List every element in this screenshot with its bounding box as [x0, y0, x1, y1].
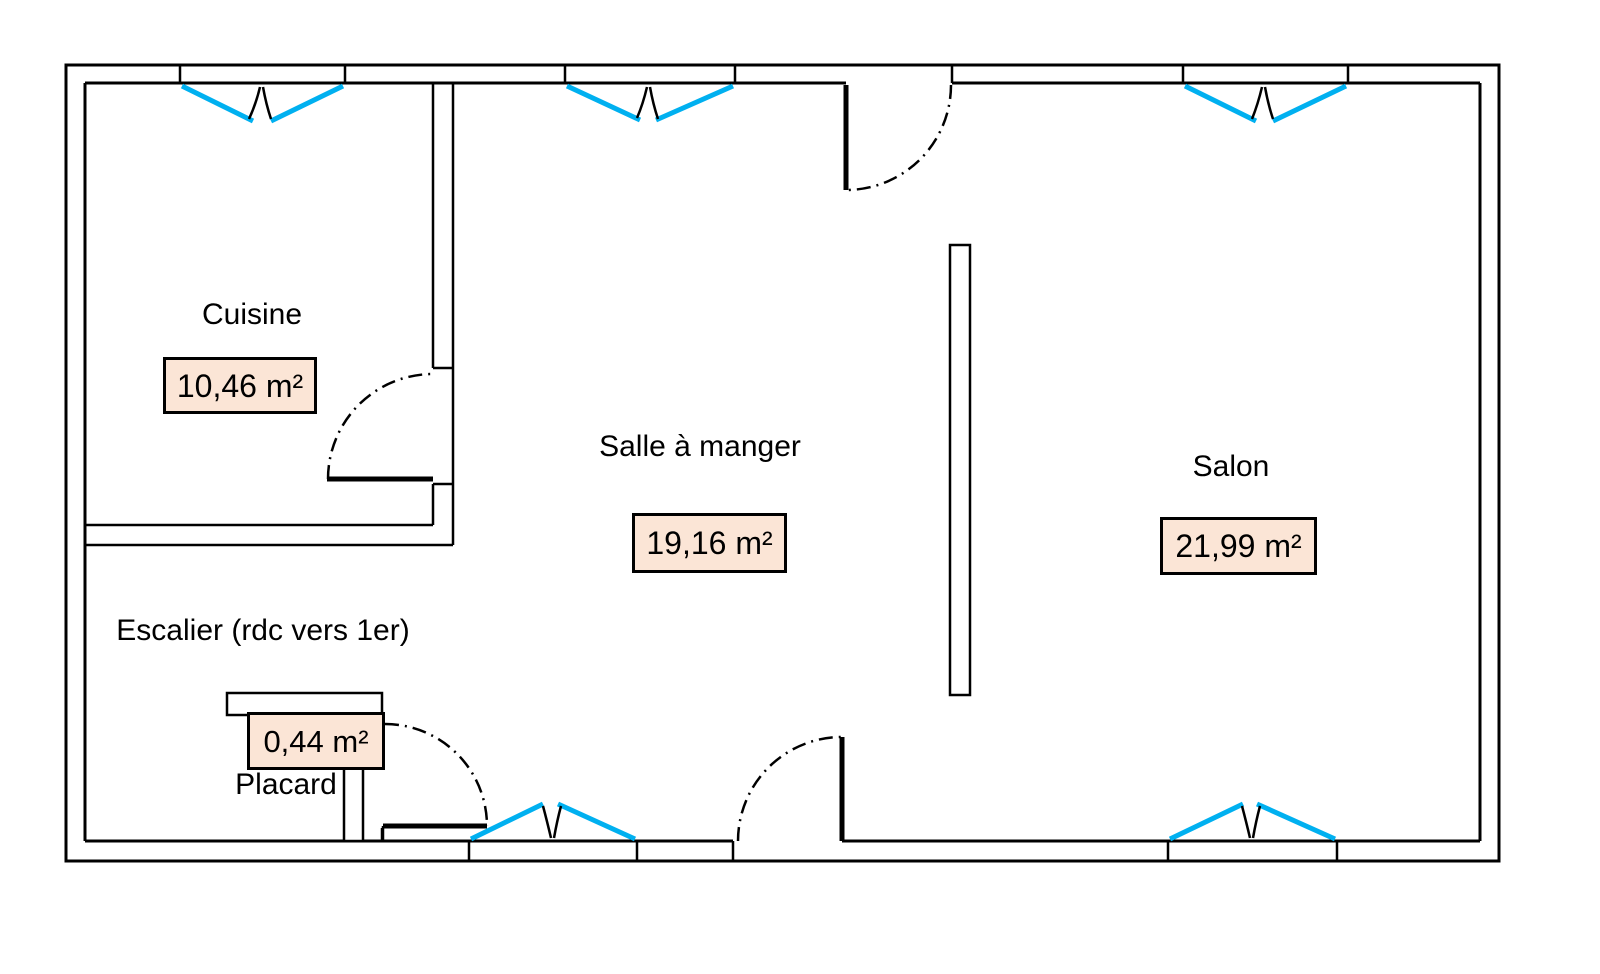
room-label-cuisine: Cuisine: [202, 300, 302, 330]
window-salle-a-manger-icon: [567, 86, 733, 120]
entrance-door-icon: [846, 85, 951, 190]
partition-wall: [950, 245, 970, 695]
window-salon-bottom-icon: [1170, 804, 1335, 839]
bottom-door-icon: [738, 737, 842, 841]
area-badge-salle-a-manger: 19,16 m²: [632, 513, 787, 573]
area-badge-placard: 0,44 m²: [247, 712, 385, 770]
room-label-salon: Salon: [1193, 452, 1270, 482]
cuisine-door-icon: [327, 374, 433, 479]
window-bottom-left-icon: [471, 804, 635, 839]
room-label-salle-a-manger: Salle à manger: [599, 432, 801, 462]
area-badge-cuisine: 10,46 m²: [163, 357, 317, 414]
window-cuisine-icon: [182, 86, 343, 121]
floor-plan: Cuisine Salle à manger Salon Escalier (r…: [0, 0, 1600, 974]
placard-door-icon: [383, 724, 487, 826]
window-salon-top-icon: [1185, 86, 1346, 121]
floor-plan-drawing: [0, 0, 1600, 974]
area-badge-salon: 21,99 m²: [1160, 517, 1317, 575]
room-label-escalier: Escalier (rdc vers 1er): [116, 616, 409, 646]
room-label-placard: Placard: [235, 770, 337, 800]
